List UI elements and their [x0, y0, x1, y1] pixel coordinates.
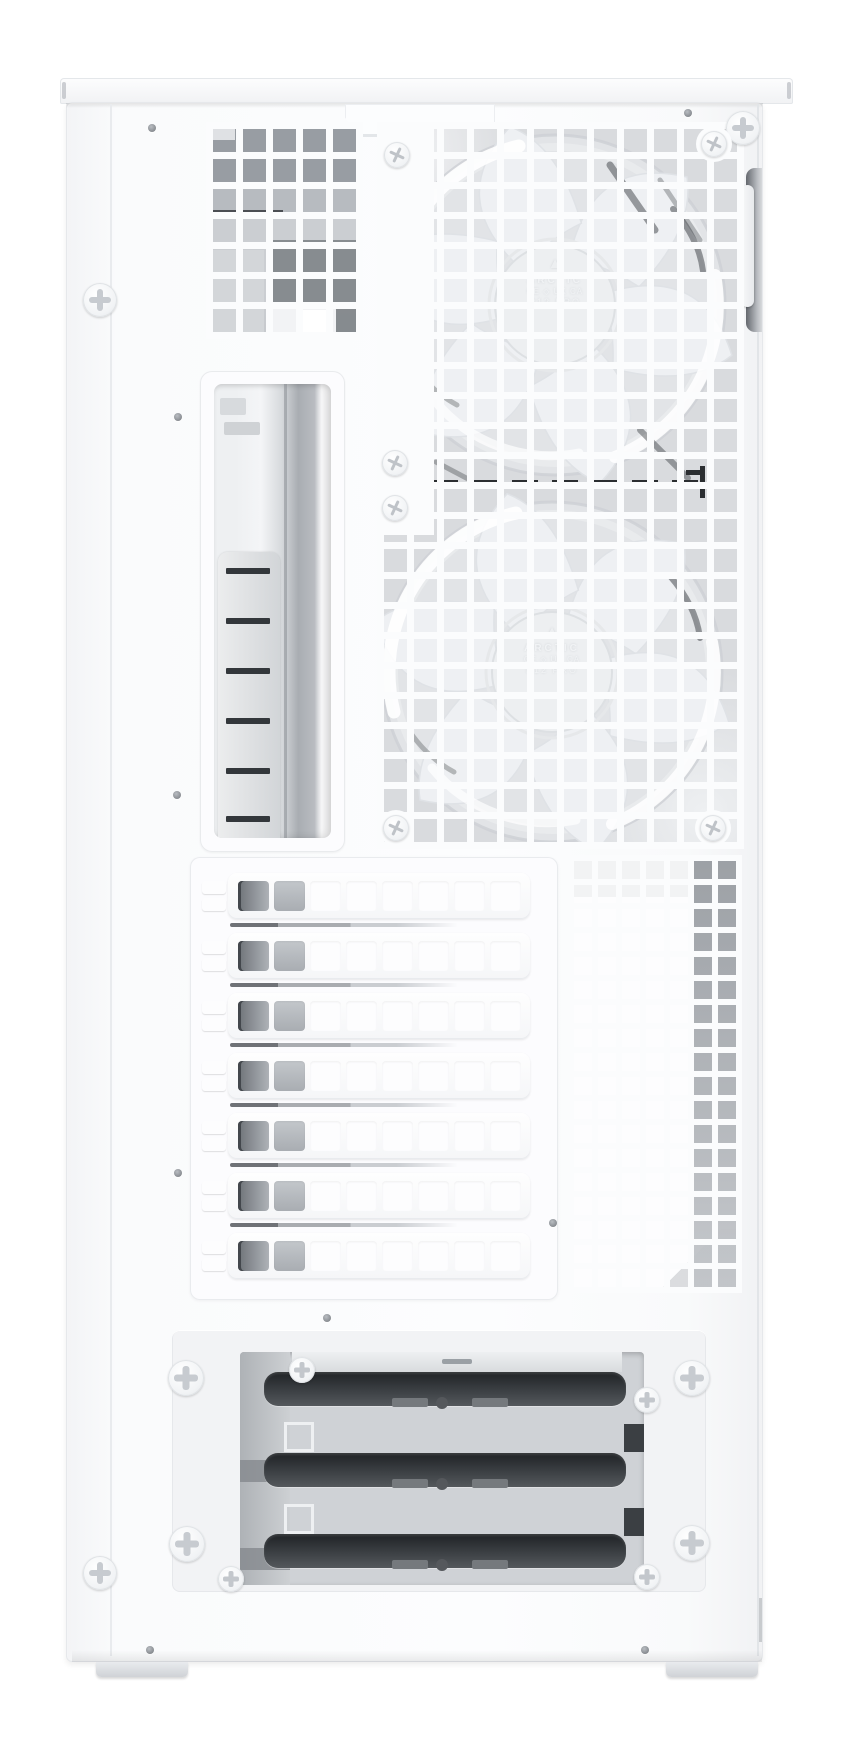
vent-hole [490, 941, 521, 971]
vent-hole [418, 1241, 449, 1271]
vent-hole [274, 941, 305, 971]
right-panel-seam [757, 104, 759, 1656]
slot-latch [202, 1241, 226, 1272]
bracket-slot [226, 618, 270, 624]
vent-hole [490, 1001, 521, 1031]
slot-latch [202, 941, 226, 972]
expansion-slot-cover [228, 1113, 530, 1159]
expansion-slot-cover [228, 993, 530, 1039]
vent-hole [382, 1121, 413, 1151]
panel-screw [382, 450, 408, 476]
slot-seam [230, 923, 498, 927]
cage-top-lip [292, 1352, 622, 1372]
rail-notch [284, 1504, 314, 1534]
vent-hole [238, 1061, 269, 1091]
vent-hole [418, 941, 449, 971]
drive-panel-thumbscrew [674, 1360, 710, 1396]
pc-case-product-photo: ▲ ARCTIC CE ◇ UK CA P12 PRO ▲ ARCTIC CE … [0, 0, 857, 1754]
slot-latch [202, 1121, 226, 1152]
drive-panel-thumbscrew [169, 1526, 205, 1562]
drive-panel-thumbscrew [168, 1360, 204, 1396]
slot-seam [230, 1043, 498, 1047]
mesh-grid-overlay [568, 855, 742, 1293]
thumbscrew-right-top [726, 111, 760, 145]
drive-bay-slot [264, 1372, 626, 1406]
vent-hole [490, 881, 521, 911]
case-foot-right [666, 1662, 758, 1677]
panel-screw [382, 495, 408, 521]
vent-hole [346, 1181, 377, 1211]
case-foot-left [96, 1662, 188, 1677]
vent-hole [382, 941, 413, 971]
drive-panel-screw [218, 1566, 244, 1592]
drive-slot-pin [436, 1559, 448, 1571]
vent-hole [454, 881, 485, 911]
panel-screw [700, 815, 726, 841]
rivet [173, 791, 181, 799]
lip-slot [442, 1359, 472, 1364]
vent-hole [418, 1061, 449, 1091]
mesh-grid-overlay [206, 122, 363, 339]
vent-hole [310, 1121, 341, 1151]
top-panel-edge [60, 78, 793, 104]
interior-tab [220, 398, 246, 415]
rail-notch [284, 1422, 314, 1452]
drive-slot-notch [392, 1560, 428, 1569]
vent-hole [274, 1121, 305, 1151]
expansion-slot-cover [228, 873, 530, 919]
vent-hole [274, 1241, 305, 1271]
drive-cage-opening [240, 1352, 644, 1585]
interior-slot-bracket [218, 552, 280, 838]
vent-hole [238, 1121, 269, 1151]
vent-hole [238, 1241, 269, 1271]
vent-hole [310, 1061, 341, 1091]
vent-hole [382, 1181, 413, 1211]
panel-screw [383, 815, 409, 841]
slot-seam [230, 1163, 498, 1167]
top-panel-end-cap-right [787, 82, 791, 99]
vent-hole [238, 1001, 269, 1031]
vent-hole [274, 881, 305, 911]
side-mesh-vent [568, 855, 742, 1293]
cage-cutout [624, 1508, 644, 1536]
vent-hole [382, 1001, 413, 1031]
top-left-mesh-vent [206, 122, 363, 339]
drive-slot-notch [472, 1398, 508, 1407]
vent-hole [346, 1121, 377, 1151]
vent-hole [238, 881, 269, 911]
drive-slot-notch [472, 1479, 508, 1488]
vent-hole [454, 1061, 485, 1091]
vent-hole [310, 1241, 341, 1271]
vent-hole [490, 1061, 521, 1091]
drive-bay-slot [264, 1453, 626, 1487]
drive-panel-thumbscrew [674, 1525, 710, 1561]
slot-latch [202, 881, 226, 912]
top-panel-end-cap-left [62, 82, 66, 99]
expansion-slot-cover [228, 1233, 530, 1279]
expansion-slot-cover [228, 1053, 530, 1099]
panel-screw [384, 142, 410, 168]
drive-panel-screw [289, 1357, 315, 1383]
rivet [174, 1169, 182, 1177]
thumbscrew-left-top [83, 283, 117, 317]
vent-hole [346, 1001, 377, 1031]
drive-slot-pin [436, 1397, 448, 1409]
bracket-slot [226, 568, 270, 574]
slot-seam [230, 1223, 498, 1227]
rivet [323, 1314, 331, 1322]
vent-hole [382, 1241, 413, 1271]
vent-hole [418, 1121, 449, 1151]
left-panel-seam [110, 104, 112, 1656]
right-edge-gap-shadow [759, 1598, 762, 1642]
panel-notch [377, 122, 434, 535]
rivet [174, 413, 182, 421]
slot-seam [230, 983, 498, 987]
cage-cutout [624, 1424, 644, 1452]
drive-slot-pin [436, 1478, 448, 1490]
vent-hole [238, 1181, 269, 1211]
vent-hole [382, 881, 413, 911]
bracket-slot [226, 668, 270, 674]
panel-screw [701, 131, 727, 157]
vent-hole [454, 1241, 485, 1271]
slot-seam [230, 1103, 498, 1107]
slot-latch [202, 1061, 226, 1092]
drive-panel-screw [634, 1564, 660, 1590]
drive-slot-notch [392, 1398, 428, 1407]
vent-hole [382, 1061, 413, 1091]
vent-hole [346, 881, 377, 911]
vent-hole [274, 1001, 305, 1031]
expansion-slot-area [190, 857, 558, 1300]
vent-hole [310, 881, 341, 911]
vent-hole [310, 1001, 341, 1031]
io-cutout-opening [214, 384, 331, 838]
vent-hole [346, 1061, 377, 1091]
fan-mesh-panel: ▲ ARCTIC CE ◇ UK CA P12 PRO ▲ ARCTIC CE … [377, 122, 744, 849]
drive-bay-slot [264, 1534, 626, 1568]
vent-hole [238, 941, 269, 971]
bracket-slot [226, 768, 270, 774]
rivet [549, 1219, 557, 1227]
interior-tab [224, 422, 260, 435]
vent-hole [418, 881, 449, 911]
drive-slot-notch [392, 1479, 428, 1488]
rivet [684, 109, 692, 117]
drive-slot-notch [472, 1560, 508, 1569]
drive-cage-panel [172, 1330, 706, 1592]
bracket-slot [226, 718, 270, 724]
vent-hole [274, 1061, 305, 1091]
vent-hole [454, 1181, 485, 1211]
expansion-slot-cover [228, 933, 530, 979]
vent-hole [490, 1121, 521, 1151]
vent-hole [274, 1181, 305, 1211]
slot-latch [202, 1001, 226, 1032]
bracket-slot [226, 816, 270, 822]
rivet [148, 124, 156, 132]
vent-hole [346, 941, 377, 971]
vent-hole [454, 1121, 485, 1151]
vent-hole [310, 941, 341, 971]
vent-hole [310, 1181, 341, 1211]
vent-hole [346, 1241, 377, 1271]
vent-hole [454, 1001, 485, 1031]
bottom-shadow [72, 1650, 762, 1662]
thumbscrew-left-bottom [83, 1556, 117, 1590]
vent-hole [490, 1241, 521, 1271]
interior-seam [284, 384, 287, 838]
expansion-slot-cover [228, 1173, 530, 1219]
vent-hole [490, 1181, 521, 1211]
vent-hole [418, 1181, 449, 1211]
drive-panel-screw [634, 1387, 660, 1413]
vent-hole [454, 941, 485, 971]
vent-hole [418, 1001, 449, 1031]
slot-latch [202, 1181, 226, 1212]
